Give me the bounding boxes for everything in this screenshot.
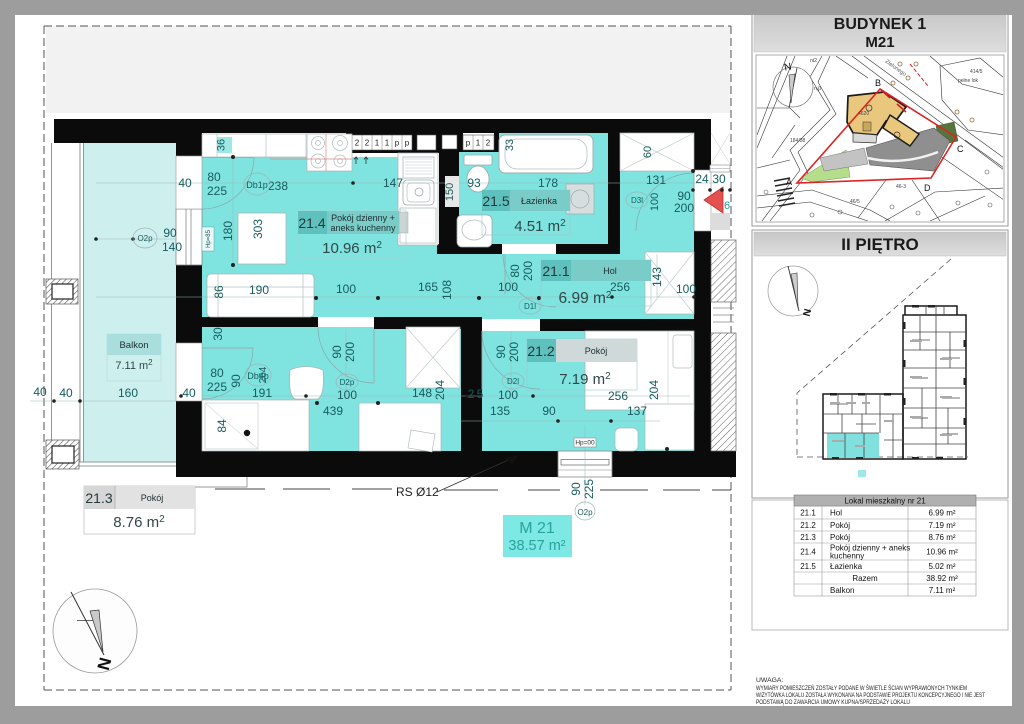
svg-text:414/5: 414/5 (970, 69, 983, 75)
svg-text:M 21: M 21 (519, 520, 555, 537)
svg-text:Hol: Hol (830, 509, 842, 518)
svg-text:7.19 m2: 7.19 m2 (559, 371, 611, 388)
svg-text:108: 108 (440, 280, 454, 300)
svg-text:21.3: 21.3 (85, 490, 112, 506)
svg-text:160: 160 (118, 386, 138, 400)
svg-text:40: 40 (182, 386, 196, 400)
svg-text:204: 204 (433, 380, 447, 400)
svg-text:Pokój: Pokój (830, 521, 850, 530)
svg-text:184/38: 184/38 (790, 138, 806, 144)
svg-text:M21: M21 (865, 34, 894, 51)
svg-text:2: 2 (355, 139, 360, 148)
svg-text:II PIĘTRO: II PIĘTRO (841, 235, 918, 254)
svg-text:Balkon: Balkon (119, 340, 148, 351)
svg-text:2: 2 (486, 139, 491, 148)
svg-text:Hol: Hol (603, 266, 617, 276)
svg-text:D1l: D1l (524, 302, 536, 311)
svg-text:90: 90 (542, 404, 556, 418)
svg-text:90: 90 (229, 374, 243, 388)
svg-text:nt2: nt2 (810, 58, 817, 64)
svg-text:33: 33 (504, 139, 516, 151)
svg-text:80: 80 (508, 264, 522, 278)
svg-text:46/5: 46/5 (850, 199, 860, 205)
svg-text:aneks kuchenny: aneks kuchenny (330, 223, 396, 233)
svg-text:100: 100 (498, 388, 518, 402)
svg-text:D3l: D3l (631, 196, 643, 205)
svg-text:Balkon: Balkon (830, 586, 854, 595)
svg-text:21.1: 21.1 (800, 509, 816, 518)
svg-text:6.99 m2: 6.99 m2 (559, 290, 612, 307)
svg-text:38.57 m²: 38.57 m² (508, 538, 565, 554)
svg-text:100: 100 (649, 193, 661, 211)
svg-text:Razem: Razem (852, 574, 878, 583)
svg-text:86: 86 (212, 285, 226, 299)
svg-text:38.92 m²: 38.92 m² (926, 574, 958, 583)
svg-text:2: 2 (365, 139, 370, 148)
svg-text:Hp=85: Hp=85 (206, 229, 212, 248)
svg-text:Db1p: Db1p (246, 180, 268, 190)
svg-text:7.11 m2: 7.11 m2 (115, 358, 153, 372)
svg-text:100: 100 (498, 280, 518, 294)
svg-text:Lokal mieszkalny nr 21: Lokal mieszkalny nr 21 (844, 497, 926, 506)
svg-text:pełne lok: pełne lok (958, 78, 979, 84)
svg-text:Db4p: Db4p (247, 371, 269, 381)
svg-text:256: 256 (610, 280, 630, 294)
svg-text:80: 80 (210, 366, 224, 380)
svg-text:200: 200 (343, 342, 357, 362)
svg-text:191: 191 (252, 386, 272, 400)
svg-text:21.4: 21.4 (298, 215, 325, 231)
svg-text:D: D (924, 183, 931, 193)
svg-text:O2p: O2p (137, 234, 153, 243)
svg-text:7.19 m²: 7.19 m² (928, 521, 955, 530)
svg-text:8.76 m²: 8.76 m² (928, 533, 955, 542)
svg-text:C: C (957, 144, 964, 154)
svg-text:Pokój: Pokój (830, 533, 850, 542)
svg-text:40: 40 (178, 176, 192, 190)
svg-text:90: 90 (330, 345, 344, 359)
svg-text:21.1: 21.1 (542, 263, 569, 279)
svg-text:Hp=00: Hp=00 (575, 440, 595, 447)
svg-text:kuchenny: kuchenny (830, 552, 864, 561)
svg-text:D2l: D2l (507, 377, 519, 386)
svg-text:6: 6 (724, 200, 730, 212)
svg-text:40: 40 (59, 386, 73, 400)
svg-text:WYMIARY POMIESZCZEŃ ZOSTAŁY PO: WYMIARY POMIESZCZEŃ ZOSTAŁY PODANE W ŚWI… (756, 683, 967, 692)
svg-text:1: 1 (476, 139, 481, 148)
svg-text:200: 200 (521, 261, 535, 281)
svg-text:84: 84 (215, 419, 229, 433)
svg-text:148: 148 (412, 386, 432, 400)
svg-text:303: 303 (251, 219, 265, 239)
svg-text:RS Ø12: RS Ø12 (396, 485, 439, 499)
svg-text:p: p (405, 139, 410, 148)
svg-text:Pokój dzienny +: Pokój dzienny + (331, 213, 395, 223)
svg-text:1: 1 (375, 139, 380, 148)
svg-text:Pokój: Pokój (141, 493, 164, 503)
svg-text:180: 180 (221, 221, 235, 241)
svg-text:D2p: D2p (340, 378, 355, 387)
svg-text:137: 137 (627, 404, 647, 418)
svg-text:143: 143 (650, 267, 664, 287)
svg-text:8.76 m2: 8.76 m2 (113, 514, 165, 531)
svg-text:36: 36 (216, 139, 228, 151)
svg-text:Łazienka: Łazienka (830, 562, 863, 571)
svg-text:10.96 m2: 10.96 m2 (322, 240, 382, 257)
svg-text:Pokój: Pokój (585, 346, 608, 356)
svg-text:B: B (875, 78, 881, 88)
svg-text:140: 140 (162, 240, 182, 254)
svg-text:PODSTAWĄ DO ZAWARCIA UMOWY KUP: PODSTAWĄ DO ZAWARCIA UMOWY KUPNA/SPRZEDA… (756, 697, 910, 706)
svg-text:165: 165 (418, 280, 438, 294)
svg-text:256: 256 (608, 389, 628, 403)
svg-text:80: 80 (207, 170, 221, 184)
svg-text:4620: 4620 (858, 111, 869, 117)
svg-text:46-3: 46-3 (896, 184, 906, 190)
svg-text:21.4: 21.4 (800, 548, 816, 557)
svg-text:WIZYTÓWKA LOKALU ZOSTAŁA WYKON: WIZYTÓWKA LOKALU ZOSTAŁA WYKONANA NA POD… (756, 690, 985, 699)
svg-text:200: 200 (674, 201, 694, 215)
svg-text:147: 147 (383, 176, 403, 190)
svg-text:Łazienka: Łazienka (521, 196, 557, 206)
svg-text:30: 30 (712, 172, 726, 186)
svg-text:131: 131 (646, 173, 666, 187)
svg-text:21.5: 21.5 (482, 193, 509, 209)
svg-text:5: 5 (477, 387, 484, 401)
svg-text:21.2: 21.2 (527, 343, 554, 359)
svg-text:135: 135 (490, 404, 510, 418)
svg-text:90: 90 (494, 345, 508, 359)
svg-text:30: 30 (211, 327, 225, 341)
svg-text:60: 60 (642, 146, 654, 158)
svg-text:40: 40 (33, 385, 47, 399)
svg-text:225: 225 (207, 380, 227, 394)
svg-text:225: 225 (207, 184, 227, 198)
svg-text:150: 150 (444, 183, 456, 201)
svg-text:7.11 m²: 7.11 m² (929, 586, 956, 595)
svg-text:BUDYNEK 1: BUDYNEK 1 (834, 16, 927, 33)
svg-text:90: 90 (163, 226, 177, 240)
svg-text:O2p: O2p (577, 508, 593, 517)
svg-text:p: p (466, 139, 471, 148)
svg-text:100: 100 (676, 282, 696, 296)
svg-text:90: 90 (569, 482, 583, 496)
svg-text:439: 439 (323, 404, 343, 418)
svg-text:204: 204 (647, 380, 661, 400)
svg-text:100: 100 (336, 282, 356, 296)
svg-text:21.2: 21.2 (800, 521, 816, 530)
svg-text:n,β: n,β (814, 86, 821, 92)
svg-text:225: 225 (582, 479, 596, 499)
svg-text:1: 1 (385, 139, 390, 148)
svg-text:24: 24 (695, 172, 709, 186)
svg-text:4.51 m2: 4.51 m2 (514, 218, 566, 235)
svg-text:238: 238 (268, 179, 288, 193)
svg-text:21.5: 21.5 (800, 562, 816, 571)
svg-text:93: 93 (467, 176, 481, 190)
svg-text:5.02 m²: 5.02 m² (928, 562, 955, 571)
svg-text:6.99 m²: 6.99 m² (928, 509, 955, 518)
svg-text:190: 190 (249, 283, 269, 297)
svg-text:21.3: 21.3 (800, 533, 816, 542)
svg-text:UWAGA:: UWAGA: (756, 677, 783, 684)
svg-text:10.96 m²: 10.96 m² (926, 548, 958, 557)
svg-text:200: 200 (507, 342, 521, 362)
svg-text:p: p (395, 139, 400, 148)
svg-text:2: 2 (468, 387, 475, 401)
svg-text:178: 178 (538, 176, 558, 190)
